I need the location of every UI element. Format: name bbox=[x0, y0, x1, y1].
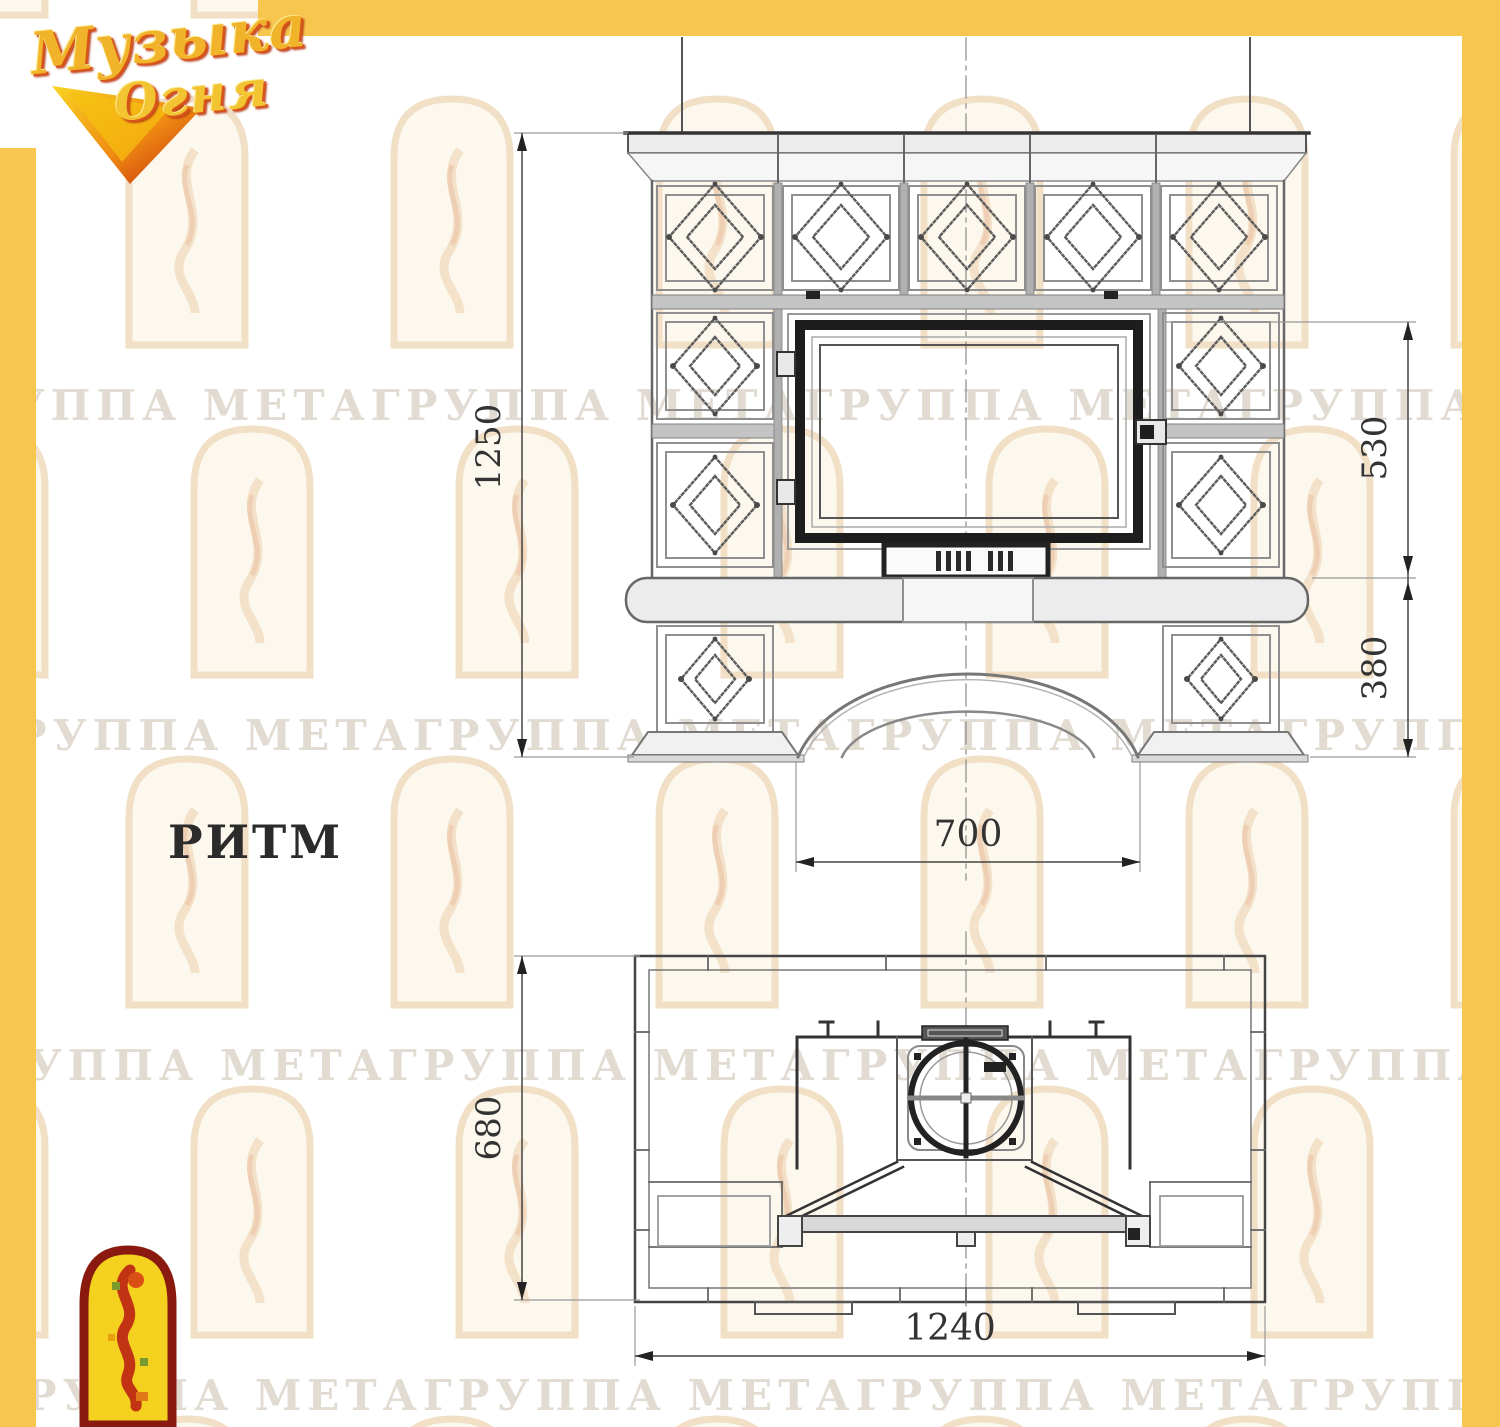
foot-pad-right bbox=[1078, 1302, 1175, 1314]
dim-opening-width: 700 bbox=[796, 762, 1140, 872]
dim-plan-width-label: 1240 bbox=[904, 1308, 996, 1349]
brand-emblem-icon bbox=[78, 1242, 178, 1427]
door-glass bbox=[820, 345, 1118, 518]
door-hinge-bottom bbox=[777, 480, 795, 504]
side-platforms bbox=[649, 1182, 1251, 1247]
dim-opening-width-label: 700 bbox=[934, 814, 1003, 855]
logo: Музыка Огня bbox=[14, 0, 304, 190]
foot-pad-left bbox=[755, 1302, 852, 1314]
dim-plan-depth: 680 bbox=[469, 956, 640, 1300]
plan-tile-joints bbox=[635, 956, 1265, 1302]
firebox-door bbox=[777, 291, 1166, 549]
firebox-insert-plan bbox=[778, 1022, 1150, 1246]
air-vent-grille bbox=[858, 545, 1072, 581]
dim-plan-depth-label: 680 bbox=[469, 1096, 509, 1161]
model-title: РИТМ bbox=[168, 815, 343, 869]
dim-base-height-label: 380 bbox=[1355, 636, 1395, 701]
fireplace-technical-drawing: 1250 530 380 70 bbox=[0, 0, 1500, 1427]
dim-right-chain: 530 380 bbox=[1166, 322, 1416, 757]
pedestal-feet bbox=[628, 732, 1308, 762]
front-view-drawing bbox=[625, 38, 1309, 880]
tile-frames bbox=[657, 186, 1279, 732]
dim-total-height: 1250 bbox=[469, 133, 634, 757]
plan-view-drawing bbox=[635, 932, 1265, 1326]
dim-firebox-height-label: 530 bbox=[1355, 416, 1395, 481]
base-arch bbox=[798, 674, 1138, 757]
page: ГРУППА МЕТАГРУППА МЕТАГРУППА МЕТАГРУППА … bbox=[0, 0, 1500, 1427]
dim-total-height-label: 1250 bbox=[469, 404, 509, 491]
door-hinge-top bbox=[777, 352, 795, 376]
